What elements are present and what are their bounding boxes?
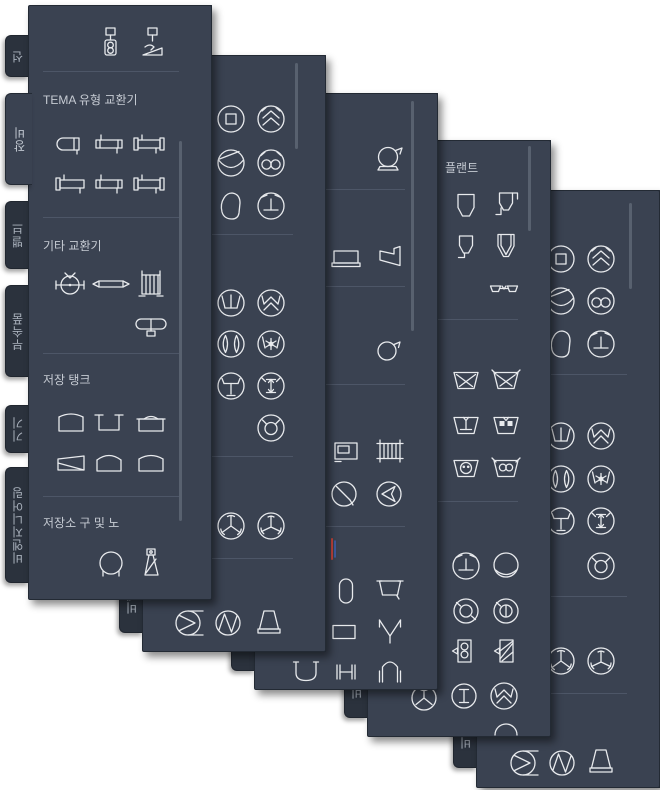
tool-symbol-bucket-icon[interactable] xyxy=(370,569,410,609)
scrollbar-thumb[interactable] xyxy=(179,141,182,521)
tool-symbol-c-T-icon[interactable] xyxy=(251,186,291,226)
palette-body: TEMA 유형 교환기기타 교환기저장 탱크저장소 구 및 노 xyxy=(28,5,212,600)
tab-label: 부속품 xyxy=(9,312,26,351)
section-header: 저장 탱크 xyxy=(43,371,91,388)
scrollbar-thumb[interactable] xyxy=(411,101,414,331)
tool-symbol-trap-icon[interactable] xyxy=(581,741,621,781)
tool-symbol-hbeam-icon[interactable] xyxy=(326,652,366,690)
tool-symbol-rect-screen-icon[interactable] xyxy=(326,238,366,278)
tool-symbol-hx-tube3-icon[interactable] xyxy=(51,164,91,204)
tool-symbol-c-square-icon[interactable] xyxy=(211,99,251,139)
tool-symbol-trap-face-icon[interactable] xyxy=(446,449,486,489)
section-header: 플랜트 xyxy=(445,159,478,176)
palette-tab-비엔지니어링[interactable]: 비엔지니어링 xyxy=(5,467,29,583)
tool-symbol-c-Iarrow-icon[interactable] xyxy=(251,366,291,406)
palette-tab-부속품[interactable]: 부속품 xyxy=(5,285,29,377)
tool-symbol-c-dblchev-icon[interactable] xyxy=(251,99,291,139)
tool-symbol-c-Tinv-icon[interactable] xyxy=(211,366,251,406)
tool-symbol-aircool-icon[interactable] xyxy=(131,303,171,343)
tool-symbol-bowl-icon[interactable] xyxy=(286,651,326,690)
tool-symbol-hx-tube-icon[interactable] xyxy=(89,164,129,204)
tool-symbol-c-O2-icon[interactable] xyxy=(486,591,526,631)
palette-tab-기기[interactable]: 기기 xyxy=(5,405,29,453)
tool-symbol-c-sigma-icon[interactable] xyxy=(504,743,544,783)
tool-symbol-cone-side-icon[interactable] xyxy=(370,236,410,276)
tool-symbol-arc-top-icon[interactable] xyxy=(486,713,526,737)
tool-symbol-c-chev-icon[interactable] xyxy=(581,416,621,456)
tool-symbol-tank-dome2-icon[interactable] xyxy=(131,443,171,483)
tool-symbol-c-sigma-icon[interactable] xyxy=(169,603,209,643)
tool-symbol-trap-dots-icon[interactable] xyxy=(486,406,526,446)
tool-symbol-c-inf-icon[interactable] xyxy=(251,143,291,183)
tab-label: 기기 xyxy=(9,416,26,442)
tool-symbol-inst1-icon[interactable] xyxy=(91,23,131,63)
drawing-area-background: 선장비밸브부속품기기비엔지니어링TEMA 유형 교환기기타 교환기저장 탱크저장… xyxy=(0,0,660,790)
tool-symbol-c-circ-icon[interactable] xyxy=(581,546,621,586)
tool-symbol-hx-round-icon[interactable] xyxy=(51,124,91,164)
section-separator xyxy=(43,71,179,72)
tool-symbol-hx-tube2-icon[interactable] xyxy=(129,164,169,204)
scrollbar-thumb[interactable] xyxy=(629,203,632,289)
tool-symbol-plate-icon[interactable] xyxy=(91,264,131,304)
tool-symbol-c-diag-icon[interactable] xyxy=(324,474,364,514)
tool-symbol-c-wave-icon[interactable] xyxy=(542,743,582,783)
section-header: 저장소 구 및 노 xyxy=(43,514,119,531)
section-header: TEMA 유형 교환기 xyxy=(43,91,138,108)
tool-symbol-trap-icon[interactable] xyxy=(249,602,289,642)
tool-symbol-hairpin-icon[interactable] xyxy=(131,264,171,304)
tool-symbol-c-leaves-icon[interactable] xyxy=(211,324,251,364)
section-separator xyxy=(43,496,179,497)
tool-symbol-tank-slope-icon[interactable] xyxy=(51,443,91,483)
palette-tab-선[interactable]: 선 xyxy=(5,35,29,77)
tool-symbol-kettle-icon[interactable] xyxy=(51,264,91,304)
tool-symbol-c-T2-icon[interactable] xyxy=(211,283,251,323)
tab-label: 비엔지니어링 xyxy=(9,486,26,564)
tool-symbol-sphere-icon[interactable] xyxy=(91,544,131,584)
tool-symbol-c-T-icon[interactable] xyxy=(446,546,486,586)
tool-symbol-rect8-icon[interactable] xyxy=(444,631,484,671)
tool-symbol-comb-icon[interactable] xyxy=(370,431,410,471)
tab-label: 선 xyxy=(9,50,26,63)
tool-symbol-c-dblchev-icon[interactable] xyxy=(581,239,621,279)
tool-symbol-rect-inner-icon[interactable] xyxy=(326,431,366,471)
tool-symbol-trapT-icon[interactable] xyxy=(446,406,486,446)
tool-symbol-hopper-leg-icon[interactable] xyxy=(446,226,486,266)
scrollbar-thumb[interactable] xyxy=(295,63,298,149)
tool-symbol-trap-inf-icon[interactable] xyxy=(486,449,526,489)
tool-symbol-c-star-icon[interactable] xyxy=(251,324,291,364)
tool-symbol-inst2-icon[interactable] xyxy=(133,23,173,63)
tool-symbol-vrect-icon[interactable] xyxy=(326,571,366,611)
tool-symbol-c-T-icon[interactable] xyxy=(581,324,621,364)
tool-symbol-c-chev-icon[interactable] xyxy=(484,676,524,716)
tab-label: 장비 xyxy=(11,126,28,152)
section-separator xyxy=(43,217,179,218)
tool-symbol-hopper-dbl-icon[interactable] xyxy=(486,226,526,266)
section-separator xyxy=(43,353,179,354)
tool-symbol-c-O-icon[interactable] xyxy=(446,591,486,631)
tool-symbol-bottle-icon[interactable] xyxy=(131,544,171,584)
tool-symbol-c-chev-icon[interactable] xyxy=(251,283,291,323)
tool-symbol-c-curve-icon[interactable] xyxy=(211,143,251,183)
tool-symbol-c-star-icon[interactable] xyxy=(581,459,621,499)
tool-symbol-rect2-icon[interactable] xyxy=(324,612,364,652)
section-header: 기타 교환기 xyxy=(43,237,102,254)
tool-symbol-c-curveB-icon[interactable] xyxy=(486,546,526,586)
tool-symbol-blower-icon[interactable] xyxy=(369,139,409,179)
tool-symbol-tank-u-icon[interactable] xyxy=(89,403,129,443)
tool-symbol-c-I-icon[interactable] xyxy=(444,676,484,716)
tool-symbol-hx-tube2-icon[interactable] xyxy=(129,124,169,164)
tool-symbol-trapX2-icon[interactable] xyxy=(486,361,526,401)
tool-symbol-c-circ-icon[interactable] xyxy=(251,408,291,448)
tool-symbol-trapX-icon[interactable] xyxy=(446,361,486,401)
tool-symbol-hx-tube-icon[interactable] xyxy=(89,124,129,164)
tool-symbol-c-3blade2-icon[interactable] xyxy=(581,641,621,681)
scrollbar-thumb[interactable] xyxy=(528,146,531,231)
tool-symbol-c-3blade-icon[interactable] xyxy=(211,506,251,546)
tool-symbol-tank-arc-icon[interactable] xyxy=(51,403,91,443)
palette-tab-밸브[interactable]: 밸브 xyxy=(5,201,29,269)
tool-symbol-c-3blade2-icon[interactable] xyxy=(251,506,291,546)
tool-palette-window-pip: 선장비밸브부속품기기비엔지니어링TEMA 유형 교환기기타 교환기저장 탱크저장… xyxy=(28,5,212,600)
tool-symbol-tank-dome-icon[interactable] xyxy=(89,443,129,483)
tab-label: 밸브 xyxy=(9,222,26,248)
tool-symbol-c-inf-icon[interactable] xyxy=(581,281,621,321)
tool-symbol-rect-hatch-icon[interactable] xyxy=(486,631,526,671)
tool-symbol-c-Iarrow-icon[interactable] xyxy=(581,501,621,541)
tool-symbol-tank-lid-icon[interactable] xyxy=(131,403,171,443)
tool-symbol-blob-icon[interactable] xyxy=(211,186,251,226)
tool-symbol-hopper-icon[interactable] xyxy=(446,186,486,226)
tool-symbol-blower2-icon[interactable] xyxy=(368,331,408,371)
tool-symbol-glasses-icon[interactable] xyxy=(484,269,524,309)
tool-symbol-c-wave-icon[interactable] xyxy=(208,603,248,643)
tool-symbol-c-poly-icon[interactable] xyxy=(369,474,409,514)
tool-symbol-funnelV-icon[interactable] xyxy=(370,610,410,650)
tool-symbol-hopper-legs-icon[interactable] xyxy=(486,184,526,224)
tool-symbol-arch-icon[interactable] xyxy=(370,650,410,690)
palette-tab-장비[interactable]: 장비 xyxy=(5,93,32,185)
